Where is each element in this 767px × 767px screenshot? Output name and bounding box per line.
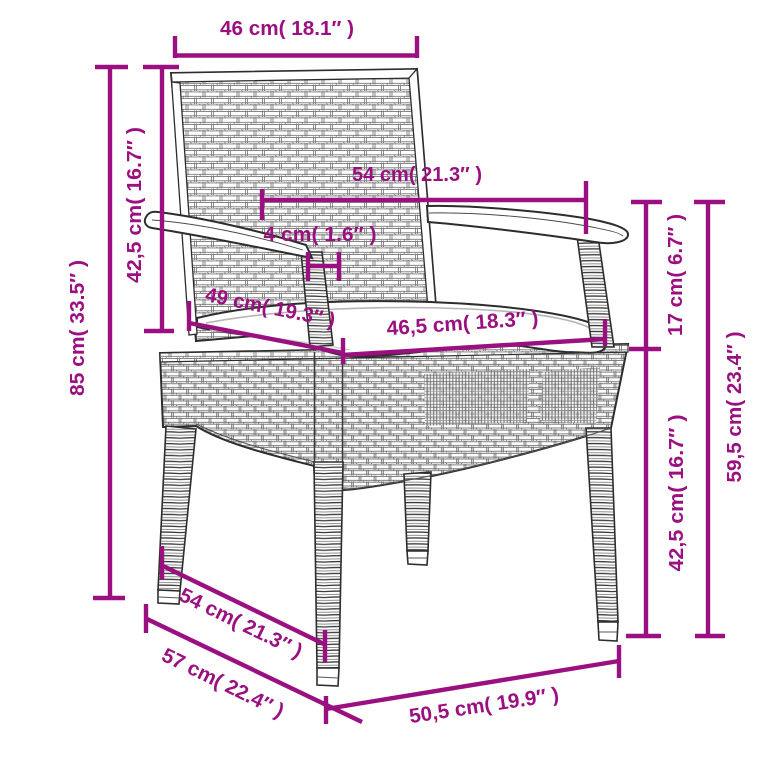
svg-text:42,5 cm( 16.7″ ): 42,5 cm( 16.7″ ) (123, 127, 146, 283)
svg-text:4 cm( 1.6″ ): 4 cm( 1.6″ ) (264, 223, 377, 246)
svg-text:54 cm( 21.3″ ): 54 cm( 21.3″ ) (176, 583, 307, 662)
svg-text:54 cm( 21.3″ ): 54 cm( 21.3″ ) (352, 163, 482, 186)
svg-text:17 cm( 6.7″ ): 17 cm( 6.7″ ) (664, 214, 687, 336)
svg-text:59,5 cm( 23.4″ ): 59,5 cm( 23.4″ ) (723, 332, 746, 483)
svg-text:46 cm( 18.1″ ): 46 cm( 18.1″ ) (220, 17, 354, 40)
svg-text:85 cm( 33.5″ ): 85 cm( 33.5″ ) (66, 260, 89, 396)
svg-text:42,5 cm( 16.7″ ): 42,5 cm( 16.7″ ) (665, 415, 688, 572)
